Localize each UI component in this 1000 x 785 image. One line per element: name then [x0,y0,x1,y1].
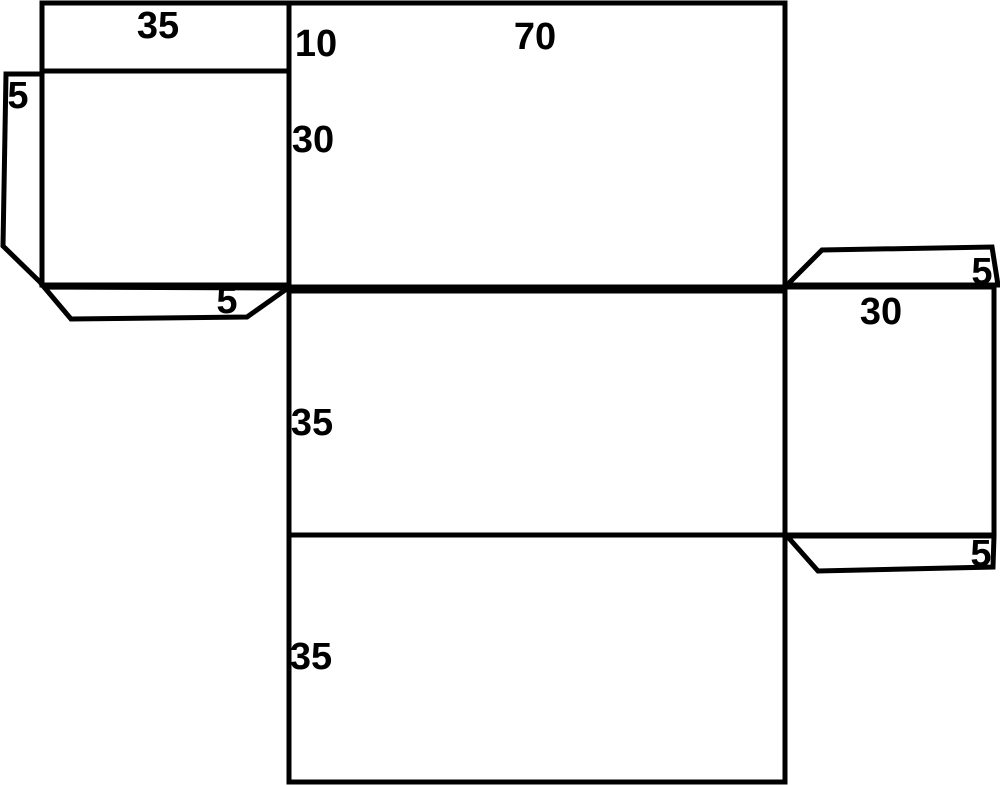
middle-panel [289,287,785,535]
bottom-panel [289,535,785,782]
label-top-right-flap: 5 [971,251,992,293]
label-right-panel-width: 30 [860,291,902,333]
label-bottom-left-flap: 5 [216,280,237,322]
net-outlines [3,3,998,782]
dimension-labels: 35 10 70 30 5 5 35 30 5 5 35 [7,5,992,678]
bottom-left-flap [44,287,288,319]
label-bottom-right-flap: 5 [970,533,991,575]
label-left-edge-flap: 5 [7,75,28,117]
left-side-panel [42,71,289,285]
label-top-left-flap: 35 [137,5,179,47]
label-bottom-panel-height: 35 [290,636,332,678]
label-middle-panel-height: 35 [291,402,333,444]
bottom-right-flap [787,536,994,571]
box-net-svg: 35 10 70 30 5 5 35 30 5 5 35 [0,0,1000,785]
label-top-panel-edge: 10 [295,23,337,65]
label-top-panel-height: 30 [292,119,334,161]
top-right-flap [787,247,998,285]
label-top-panel-width: 70 [514,16,556,58]
box-net-diagram: 35 10 70 30 5 5 35 30 5 5 35 [0,0,1000,785]
